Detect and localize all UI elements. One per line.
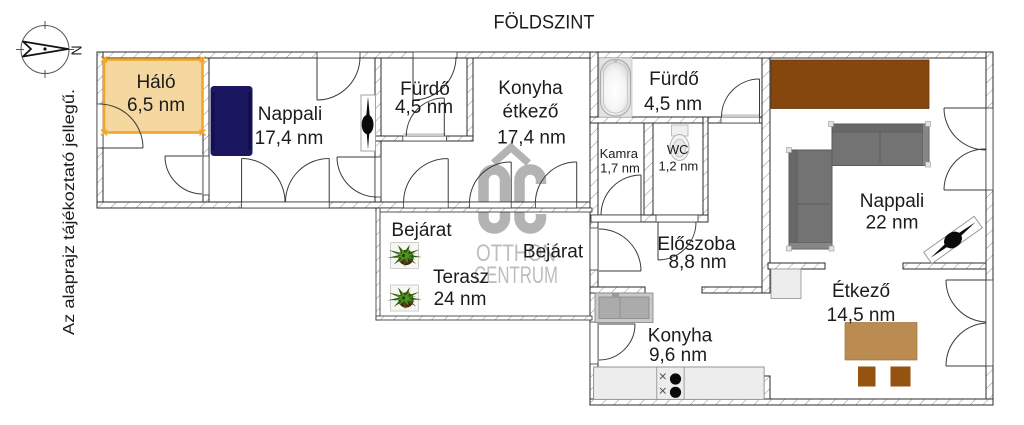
svg-text:Háló: Háló [136,72,175,93]
svg-text:24 nm: 24 nm [434,289,487,310]
svg-text:N: N [68,45,84,55]
svg-text:Bejárat: Bejárat [391,220,452,241]
svg-text:Az alaprajz tájékoztató jelleg: Az alaprajz tájékoztató jellegű. [61,89,78,335]
svg-text:Fürdő: Fürdő [649,69,699,90]
svg-text:8,8 nm: 8,8 nm [668,252,726,273]
svg-text:1,7 nm: 1,7 nm [600,161,640,176]
svg-text:étkező: étkező [503,102,559,123]
svg-text:FÖLDSZINT: FÖLDSZINT [494,12,595,34]
svg-text:Bejárat: Bejárat [523,242,584,263]
svg-text:WC: WC [667,142,689,157]
svg-text:9,6 nm: 9,6 nm [649,345,707,366]
svg-text:1,2 nm: 1,2 nm [659,159,699,174]
svg-text:Étkező: Étkező [832,281,890,302]
svg-text:Konyha: Konyha [498,78,563,99]
svg-text:17,4 nm: 17,4 nm [255,128,324,149]
svg-text:Kamra: Kamra [600,146,639,161]
svg-text:22 nm: 22 nm [866,213,919,234]
svg-text:17,4 nm: 17,4 nm [497,128,566,149]
svg-text:4,5 nm: 4,5 nm [644,94,702,115]
svg-text:4,5 nm: 4,5 nm [395,97,453,118]
svg-text:14,5 nm: 14,5 nm [827,305,896,326]
svg-text:6,5 nm: 6,5 nm [127,95,185,116]
svg-text:Terasz: Terasz [433,267,489,288]
svg-text:Nappali: Nappali [860,191,924,212]
svg-text:Konyha: Konyha [648,326,713,347]
svg-text:Nappali: Nappali [258,104,322,125]
